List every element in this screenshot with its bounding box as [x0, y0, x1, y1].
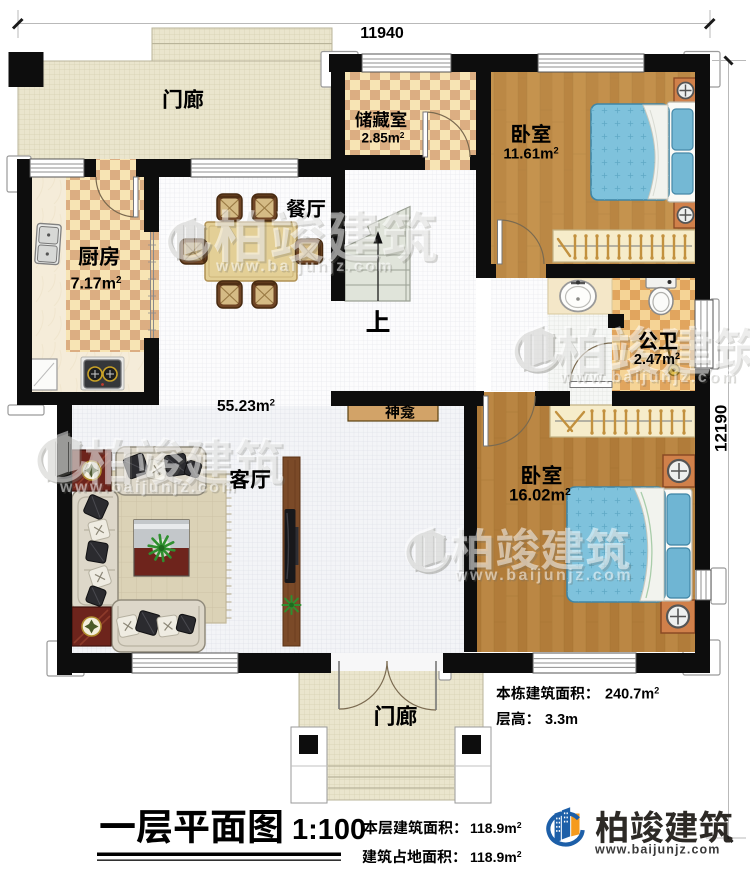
svg-text:www.baijunjz.com: www.baijunjz.com [59, 479, 238, 496]
svg-text:2.47m2: 2.47m2 [634, 351, 680, 368]
svg-text:240.7m2: 240.7m2 [605, 686, 659, 703]
svg-text:12190: 12190 [712, 405, 731, 452]
svg-text:118.9m2: 118.9m2 [470, 849, 522, 865]
svg-text:www.baijunjz.com: www.baijunjz.com [594, 843, 720, 857]
svg-text:7.17m2: 7.17m2 [71, 275, 122, 292]
svg-text:2.85m2: 2.85m2 [362, 130, 405, 146]
svg-text:www.baijunjz.com: www.baijunjz.com [559, 369, 738, 386]
svg-text:16.02m2: 16.02m2 [509, 487, 571, 505]
svg-text:3.3m: 3.3m [545, 712, 578, 728]
svg-text:www.baijunjz.com: www.baijunjz.com [454, 567, 633, 584]
svg-text:118.9m2: 118.9m2 [470, 820, 522, 836]
svg-text:11940: 11940 [360, 25, 404, 42]
svg-text:55.23m2: 55.23m2 [217, 398, 275, 415]
svg-text:www.baijunjz.com: www.baijunjz.com [215, 258, 394, 275]
svg-text:1:100: 1:100 [292, 814, 366, 846]
svg-text:11.61m2: 11.61m2 [503, 145, 558, 162]
